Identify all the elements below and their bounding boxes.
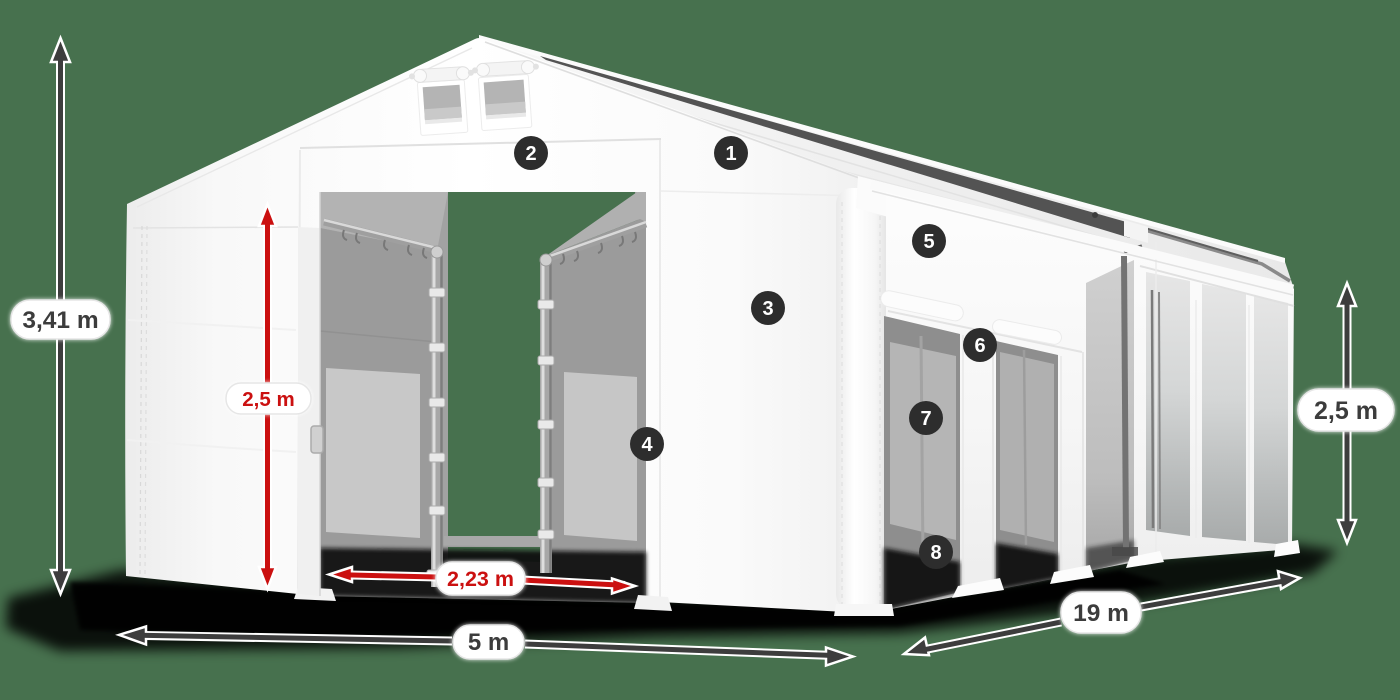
svg-text:3: 3 (762, 298, 773, 320)
svg-text:4: 4 (641, 434, 653, 456)
svg-text:2,5 m: 2,5 m (242, 388, 294, 411)
svg-text:2: 2 (525, 143, 536, 165)
svg-text:6: 6 (974, 335, 985, 357)
svg-text:1: 1 (725, 143, 736, 165)
svg-text:8: 8 (930, 542, 941, 564)
svg-text:5: 5 (923, 231, 934, 253)
svg-text:19 m: 19 m (1073, 600, 1129, 627)
svg-text:2,5 m: 2,5 m (1314, 397, 1378, 425)
svg-text:3,41 m: 3,41 m (22, 307, 98, 334)
svg-text:5 m: 5 m (468, 629, 509, 656)
svg-text:7: 7 (920, 408, 931, 430)
svg-text:2,23 m: 2,23 m (447, 567, 514, 591)
